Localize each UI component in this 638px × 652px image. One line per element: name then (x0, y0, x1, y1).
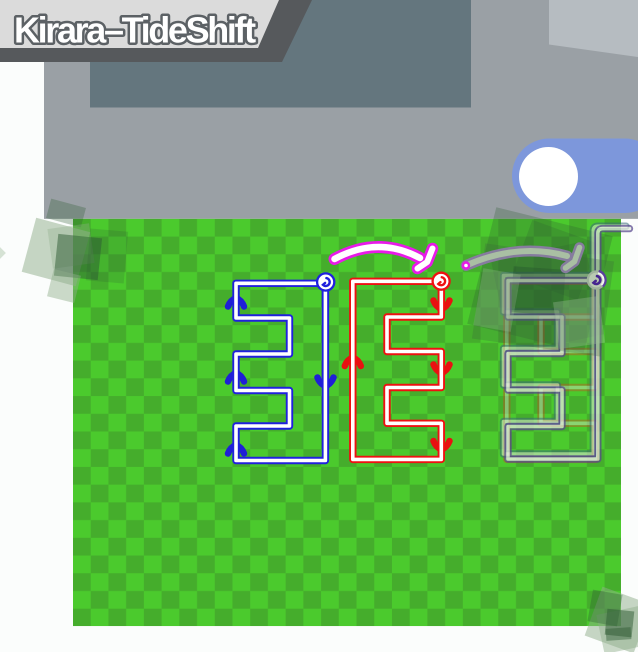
svg-text:Kirara–TideShift: Kirara–TideShift (14, 10, 256, 51)
